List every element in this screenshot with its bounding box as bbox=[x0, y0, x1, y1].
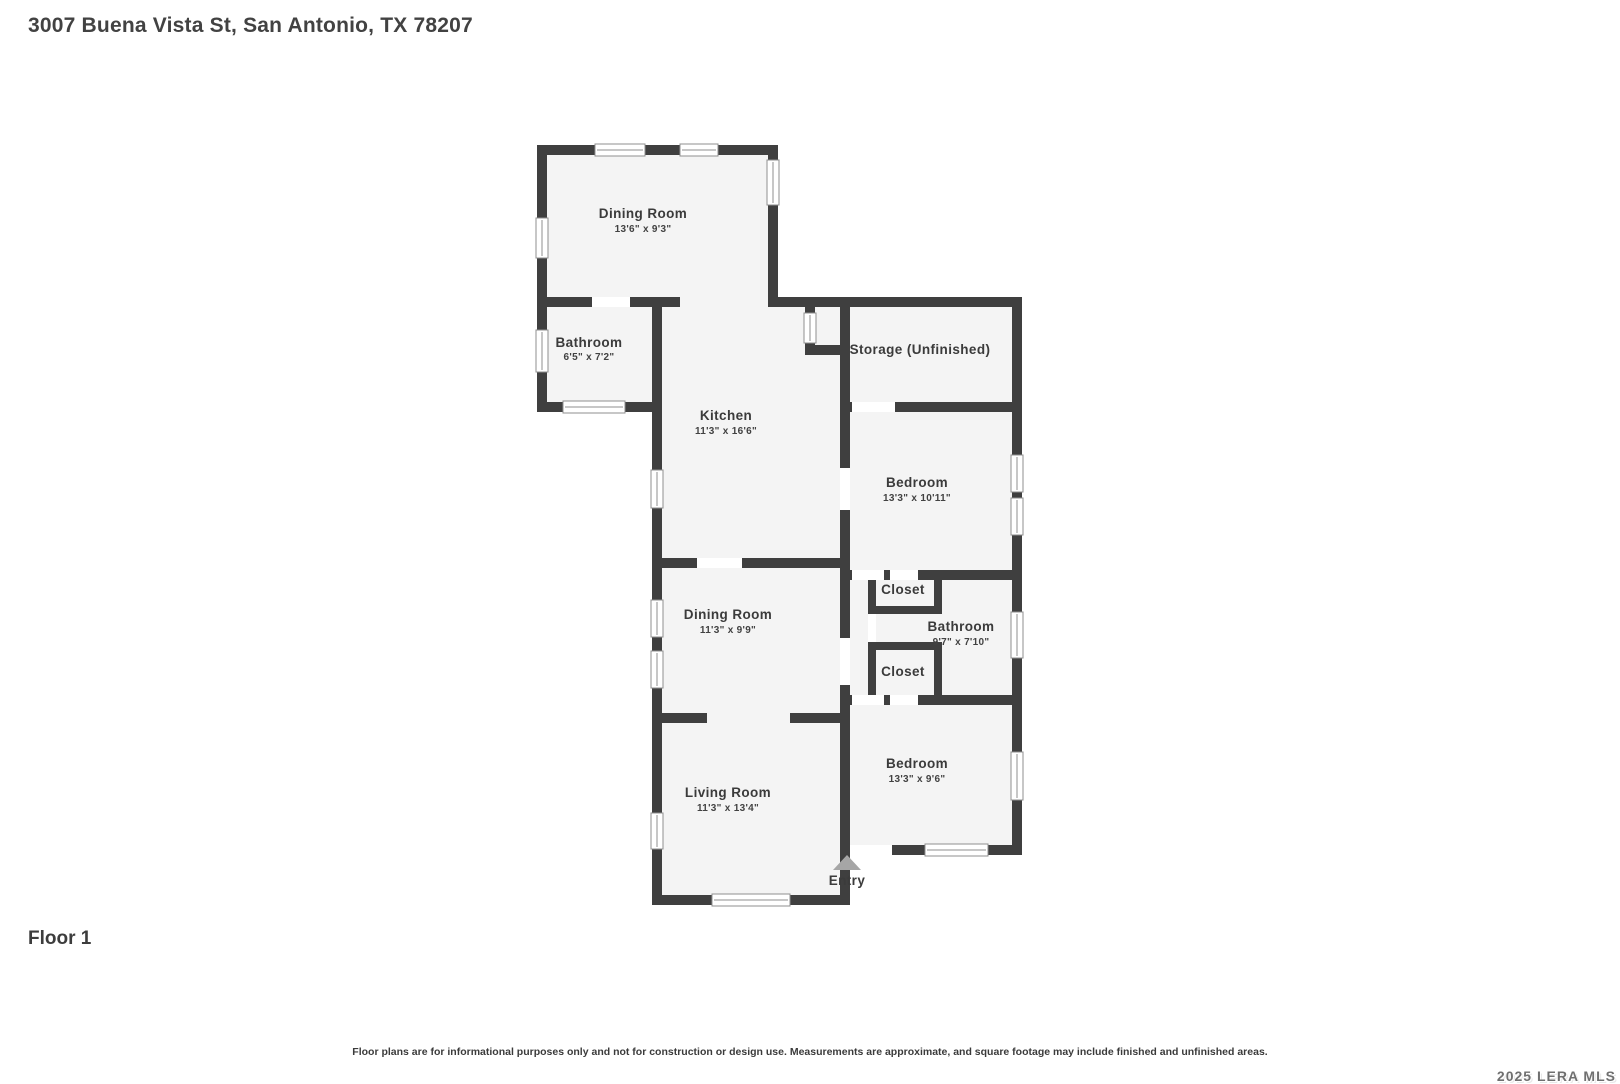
door-closet1 bbox=[890, 570, 918, 580]
room-dims-kitchen: 11'3" x 16'6" bbox=[695, 426, 757, 437]
room-label-closet-top: Closet bbox=[881, 582, 925, 597]
room-dims-bedroom-bottom: 13'3" x 9'6" bbox=[889, 774, 946, 785]
door-entry bbox=[850, 845, 892, 855]
floor-plan-diagram: Dining Room 13'6" x 9'3" Bathroom 6'5" x… bbox=[0, 0, 1620, 1080]
footprint-shape bbox=[537, 145, 1022, 905]
room-label-entry: Entry bbox=[829, 873, 866, 888]
room-label-bedroom-bottom: Bedroom bbox=[886, 756, 948, 771]
wall-top bbox=[537, 145, 778, 155]
door-dining-hall bbox=[840, 638, 850, 685]
wall-closet2-top bbox=[868, 642, 942, 650]
room-label-bathroom-top: Bathroom bbox=[556, 335, 623, 350]
room-label-bedroom-top: Bedroom bbox=[886, 475, 948, 490]
wall-closet1-right bbox=[934, 570, 942, 614]
wall-kitchen-dining-b bbox=[742, 558, 850, 568]
wall-dining-bottom-b bbox=[630, 297, 680, 307]
disclaimer-text: Floor plans are for informational purpos… bbox=[0, 1046, 1620, 1058]
wall-rightwing-top bbox=[768, 297, 1022, 307]
wall-closet2-right bbox=[934, 642, 942, 705]
wall-storage-bottom-b bbox=[895, 402, 1022, 412]
wall-dining-bottom-a bbox=[537, 297, 592, 307]
room-dims-dining-mid: 11'3" x 9'9" bbox=[700, 625, 756, 636]
wall-hall-bedroom2-a bbox=[840, 695, 852, 705]
room-dims-living: 11'3" x 13'4" bbox=[697, 803, 759, 814]
room-label-storage: Storage (Unfinished) bbox=[850, 342, 991, 357]
door-dining-bathroom bbox=[592, 297, 630, 307]
wall-bedroom1-bottom-c bbox=[918, 570, 1022, 580]
door-storage bbox=[852, 402, 895, 412]
door-hall-bedroom2 bbox=[852, 695, 884, 705]
room-label-bathroom-mid: Bathroom bbox=[928, 619, 995, 634]
room-dims-bathroom-mid: 9'7" x 7'10" bbox=[933, 637, 990, 648]
floor-label: Floor 1 bbox=[28, 928, 91, 950]
door-bathroom-mid bbox=[868, 614, 876, 642]
wall-closet1-bottom bbox=[868, 606, 942, 614]
wall-dining-living-b bbox=[790, 713, 850, 723]
door-closet2 bbox=[890, 695, 918, 705]
footprint bbox=[537, 145, 1022, 905]
wall-bedroom1-bottom-b bbox=[884, 570, 890, 580]
wall-bedroom1-bottom-a bbox=[840, 570, 852, 580]
wall-alcove-bottom bbox=[805, 345, 850, 355]
door-kitchen-dining bbox=[697, 558, 742, 568]
room-label-kitchen: Kitchen bbox=[700, 408, 752, 423]
room-dims-bedroom-top: 13'3" x 10'11" bbox=[883, 493, 951, 504]
door-kitchen-bedroom bbox=[840, 468, 850, 510]
room-label-closet-bottom: Closet bbox=[881, 664, 925, 679]
watermark: 2025 LERA MLS bbox=[1497, 1068, 1616, 1084]
wall-hall-bedroom2-c bbox=[918, 695, 1022, 705]
wall-hall-bedroom2-b bbox=[884, 695, 890, 705]
wall-storage-bottom-a bbox=[840, 402, 852, 412]
room-dims-bathroom-top: 6'5" x 7'2" bbox=[564, 352, 615, 363]
room-label-living: Living Room bbox=[685, 785, 771, 800]
wall-column-right bbox=[840, 297, 850, 905]
room-label-dining-top: Dining Room bbox=[599, 206, 687, 221]
door-bedroom1-hall bbox=[852, 570, 884, 580]
wall-dining-living-a bbox=[652, 713, 707, 723]
room-dims-dining-top: 13'6" x 9'3" bbox=[615, 224, 672, 235]
wall-kitchen-dining-a bbox=[652, 558, 697, 568]
room-label-dining-mid: Dining Room bbox=[684, 607, 772, 622]
